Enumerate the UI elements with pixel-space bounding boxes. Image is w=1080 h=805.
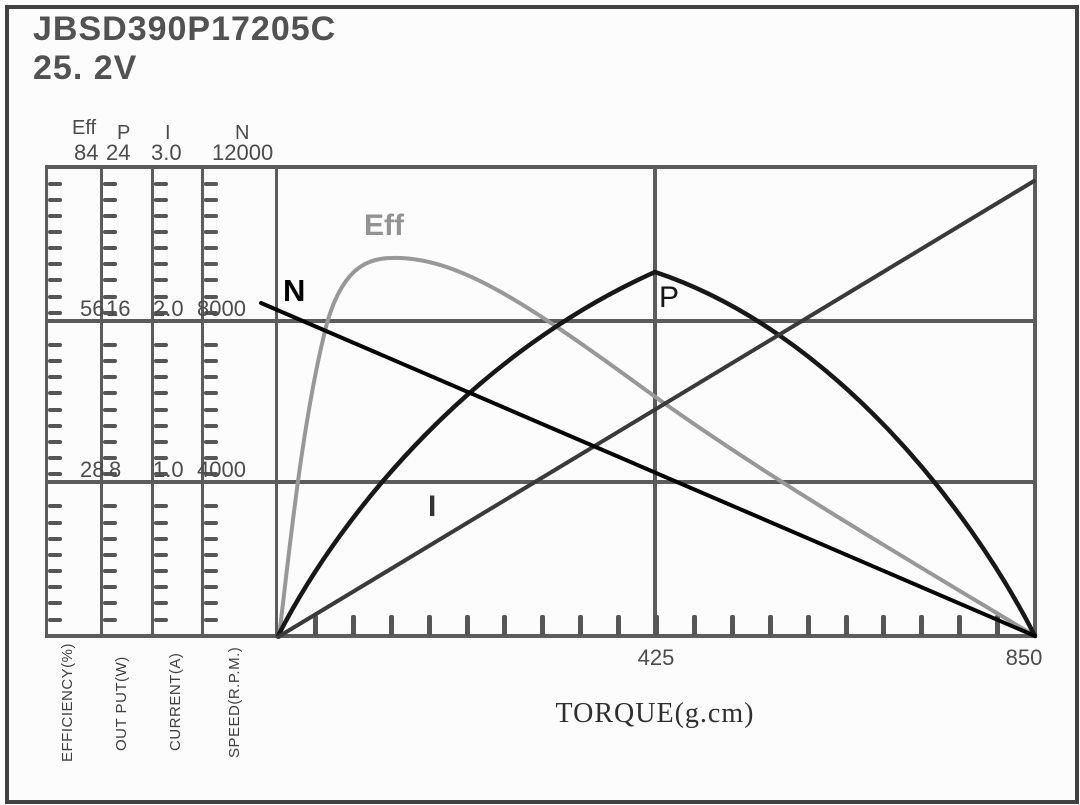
x-axis-minor-tick <box>465 615 470 636</box>
p-curve-label: P <box>659 281 679 315</box>
plot-frame-right <box>1033 165 1037 638</box>
axis-column-line-p <box>100 165 103 634</box>
x-axis-minor-tick <box>578 615 583 636</box>
i-mid-value: 2.0 <box>153 296 184 322</box>
x-axis-minor-tick <box>389 615 394 636</box>
axis-minor-tick <box>154 504 168 508</box>
x-axis-minor-tick <box>351 615 356 636</box>
n-curve-label: N <box>283 273 305 309</box>
axis-minor-tick <box>48 343 62 347</box>
axis-minor-tick <box>154 537 168 541</box>
axis-minor-tick <box>204 230 218 234</box>
plot-frame-left <box>45 165 48 638</box>
axis-minor-tick <box>103 230 117 234</box>
axis-minor-tick <box>48 262 62 266</box>
axis-minor-tick <box>48 537 62 541</box>
torque-axis-label: TORQUE(g.cm) <box>556 698 755 730</box>
axis-minor-tick <box>204 375 218 379</box>
eff-curve-label: Eff <box>364 209 404 243</box>
axis-minor-tick <box>48 569 62 573</box>
axis-minor-tick <box>204 408 218 412</box>
axis-minor-tick <box>154 230 168 234</box>
axis-minor-tick <box>48 182 62 186</box>
axis-minor-tick <box>103 618 117 622</box>
axis-minor-tick <box>204 521 218 525</box>
axis-minor-tick <box>103 504 117 508</box>
p-low-value: 8 <box>109 457 121 483</box>
p-mid-value: 16 <box>106 296 130 322</box>
x-axis-minor-tick <box>313 615 318 636</box>
v-gridline-425 <box>653 165 657 634</box>
axis-minor-tick <box>48 408 62 412</box>
axis-minor-tick <box>154 182 168 186</box>
i-curve-label: I <box>428 490 436 524</box>
axis-minor-tick <box>103 521 117 525</box>
axis-minor-tick <box>204 214 218 218</box>
axis-column-line-i <box>151 165 154 634</box>
x-axis-minor-tick <box>957 615 962 636</box>
axis-minor-tick <box>103 391 117 395</box>
axis-minor-tick <box>48 375 62 379</box>
axis-minor-tick <box>204 601 218 605</box>
axis-minor-tick <box>154 424 168 428</box>
axis-minor-tick <box>48 359 62 363</box>
axis-minor-tick <box>48 618 62 622</box>
axis-minor-tick <box>154 359 168 363</box>
axis-minor-tick <box>204 182 218 186</box>
axis-minor-tick <box>154 601 168 605</box>
axis-minor-tick <box>204 359 218 363</box>
model-number: JBSD390P17205C <box>33 10 336 49</box>
axis-minor-tick <box>154 408 168 412</box>
current-axis-label: CURRENT(A) <box>167 653 184 751</box>
axis-minor-tick <box>48 601 62 605</box>
axis-minor-tick <box>154 198 168 202</box>
x-axis-minor-tick <box>844 615 849 636</box>
axis-minor-tick <box>154 262 168 266</box>
axis-minor-tick <box>48 311 62 315</box>
axis-minor-tick <box>204 585 218 589</box>
i-max-value: 3.0 <box>151 140 182 166</box>
h-gridline-mid <box>45 319 1037 323</box>
axis-minor-tick <box>48 198 62 202</box>
x-axis-minor-tick <box>919 615 924 636</box>
axis-minor-tick <box>103 537 117 541</box>
x-axis-minor-tick <box>995 615 1000 636</box>
axis-minor-tick <box>103 246 117 250</box>
plot-frame-top <box>45 165 1037 169</box>
axis-minor-tick <box>48 440 62 444</box>
x-axis-minor-tick <box>730 615 735 636</box>
eff-mid-value: 56 <box>80 296 104 322</box>
axis-minor-tick <box>48 553 62 557</box>
x-axis-minor-tick <box>692 615 697 636</box>
axis-minor-tick <box>204 504 218 508</box>
axis-minor-tick <box>103 601 117 605</box>
axis-minor-tick <box>204 569 218 573</box>
axis-minor-tick <box>204 262 218 266</box>
n-low-value: 4000 <box>197 457 246 483</box>
x-axis-minor-tick <box>427 615 432 636</box>
axis-minor-tick <box>154 343 168 347</box>
axis-minor-tick <box>48 246 62 250</box>
axis-minor-tick <box>154 569 168 573</box>
axis-minor-tick <box>204 343 218 347</box>
axis-minor-tick <box>103 262 117 266</box>
axis-minor-tick <box>103 198 117 202</box>
axis-minor-tick <box>48 278 62 282</box>
axis-minor-tick <box>103 278 117 282</box>
x-axis-minor-tick <box>540 615 545 636</box>
eff-axis-name: Eff <box>72 117 96 140</box>
axis-minor-tick <box>204 246 218 250</box>
axis-minor-tick <box>204 424 218 428</box>
axis-minor-tick <box>154 214 168 218</box>
voltage-rating: 25. 2V <box>33 49 336 88</box>
x-axis-minor-tick <box>768 615 773 636</box>
axis-minor-tick <box>103 408 117 412</box>
axis-minor-tick <box>103 359 117 363</box>
axis-minor-tick <box>204 198 218 202</box>
axis-minor-tick <box>204 537 218 541</box>
n-mid-value: 8000 <box>197 296 246 322</box>
axis-minor-tick <box>48 456 62 460</box>
axis-minor-tick <box>48 214 62 218</box>
speed-axis-label: SPEED(R.P.M.) <box>226 647 243 758</box>
eff-max-value: 84 <box>74 140 98 166</box>
axis-minor-tick <box>154 585 168 589</box>
i-low-value: 1.0 <box>153 457 184 483</box>
axis-minor-tick <box>204 553 218 557</box>
axis-minor-tick <box>204 391 218 395</box>
axis-minor-tick <box>204 618 218 622</box>
axis-minor-tick <box>103 343 117 347</box>
x-axis-minor-tick <box>654 615 659 636</box>
axis-minor-tick <box>103 585 117 589</box>
axis-minor-tick <box>154 375 168 379</box>
x-tick-425: 425 <box>638 645 675 671</box>
output-axis-label: OUT PUT(W) <box>113 656 130 751</box>
axis-minor-tick <box>48 585 62 589</box>
axis-minor-tick <box>154 246 168 250</box>
axis-minor-tick <box>154 553 168 557</box>
axis-minor-tick <box>103 424 117 428</box>
axis-minor-tick <box>48 504 62 508</box>
axis-minor-tick <box>154 618 168 622</box>
axis-minor-tick <box>48 521 62 525</box>
plot-area-left-edge <box>275 165 278 634</box>
motor-performance-chart-page: { "title": { "model": "JBSD390P17205C", … <box>0 0 1080 805</box>
axis-minor-tick <box>154 521 168 525</box>
axis-minor-tick <box>103 214 117 218</box>
x-axis-minor-tick <box>616 615 621 636</box>
x-tick-850: 850 <box>1006 645 1043 671</box>
axis-minor-tick <box>103 569 117 573</box>
axis-minor-tick <box>204 278 218 282</box>
axis-minor-tick <box>154 391 168 395</box>
axis-minor-tick <box>48 230 62 234</box>
axis-minor-tick <box>154 278 168 282</box>
axis-minor-tick <box>48 472 62 476</box>
axis-minor-tick <box>103 375 117 379</box>
axis-minor-tick <box>204 440 218 444</box>
axis-minor-tick <box>103 440 117 444</box>
axis-minor-tick <box>154 440 168 444</box>
efficiency-axis-label: EFFICIENCY(%) <box>59 643 76 762</box>
axis-minor-tick <box>48 391 62 395</box>
axis-minor-tick <box>103 553 117 557</box>
axis-column-line-n <box>201 165 204 634</box>
x-axis-minor-tick <box>502 615 507 636</box>
n-max-value: 12000 <box>212 140 273 166</box>
eff-low-value: 28 <box>80 457 104 483</box>
x-axis-minor-tick <box>881 615 886 636</box>
x-axis-minor-tick <box>806 615 811 636</box>
chart-title-block: JBSD390P17205C 25. 2V <box>33 10 336 88</box>
p-max-value: 24 <box>106 140 130 166</box>
axis-minor-tick <box>48 424 62 428</box>
axis-minor-tick <box>48 295 62 299</box>
axis-minor-tick <box>103 182 117 186</box>
h-gridline-low <box>45 480 1037 484</box>
